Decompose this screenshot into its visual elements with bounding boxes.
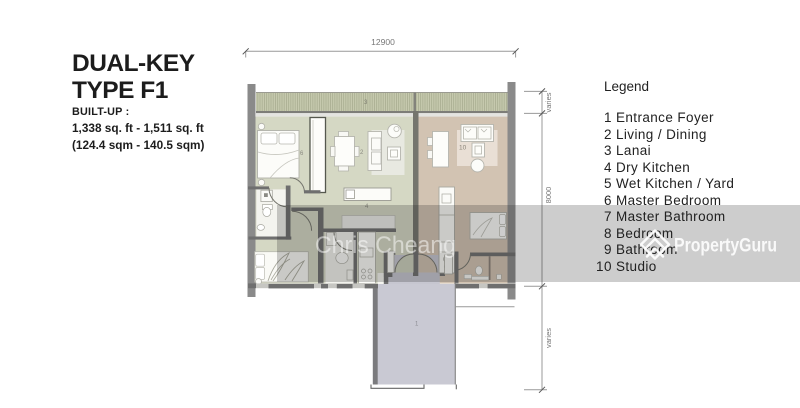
svg-text:Chris Cheang: Chris Cheang: [315, 232, 456, 259]
svg-text:PropertyGuru: PropertyGuru: [674, 235, 777, 257]
